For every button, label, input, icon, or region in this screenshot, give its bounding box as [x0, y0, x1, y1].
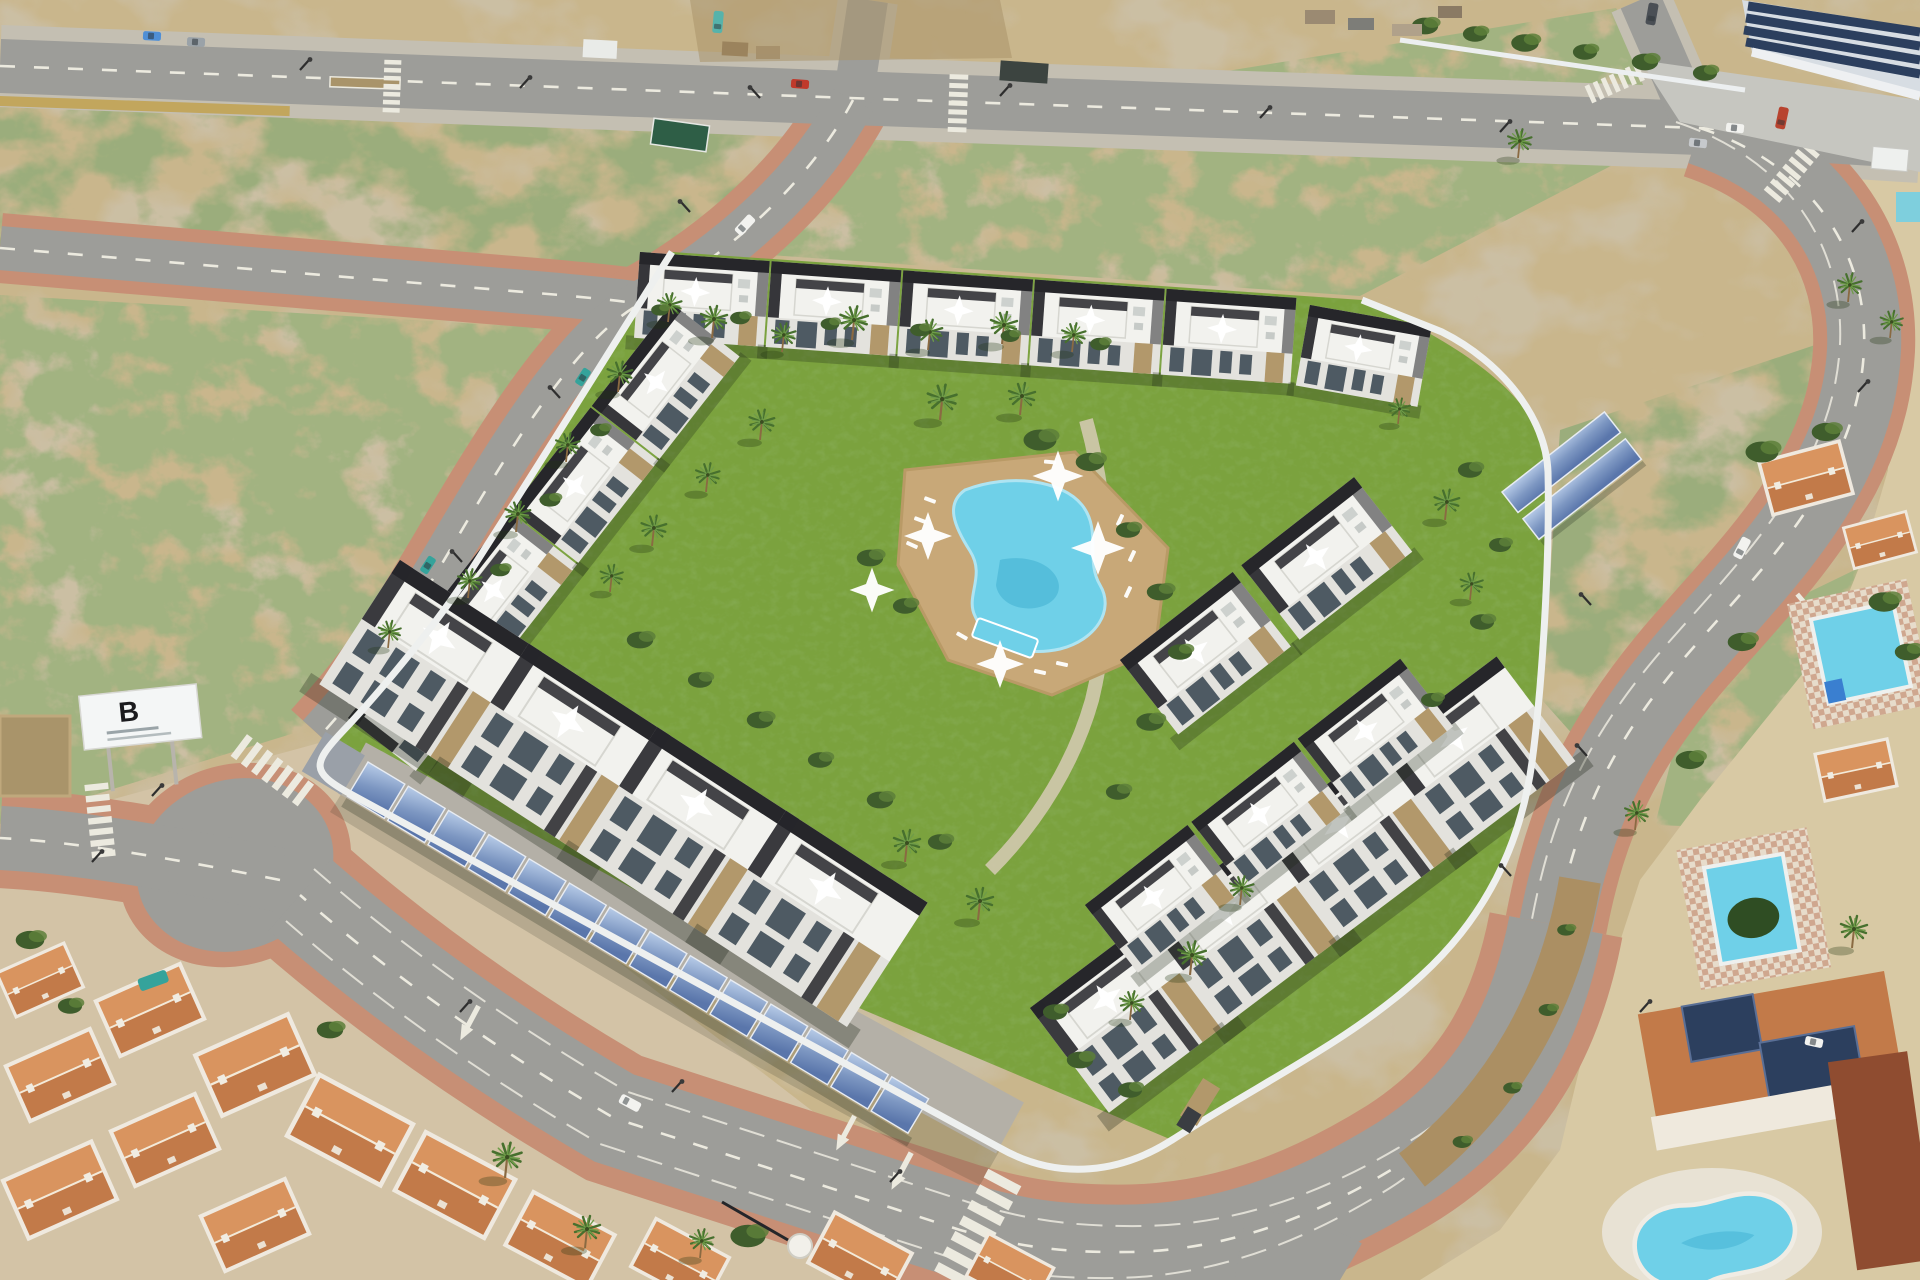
billboard-panel — [79, 684, 202, 750]
construction-plot — [690, 0, 1012, 62]
red-car — [791, 79, 810, 89]
roof-solar-array-1 — [1682, 994, 1763, 1062]
aerial-render: B — [0, 0, 1920, 1280]
aerial-scene: B — [0, 0, 1920, 1280]
walled-yard — [0, 716, 70, 796]
white-shed — [583, 39, 618, 59]
billboard-logo: B — [117, 695, 140, 728]
white-turret — [788, 1234, 812, 1258]
white-sign — [1871, 146, 1909, 171]
grey-car — [187, 37, 205, 47]
silver-car-top — [1689, 138, 1708, 149]
villa-mid — [1676, 827, 1831, 990]
bus-shelter — [999, 60, 1048, 83]
teal-bus-top — [712, 11, 724, 34]
white-car-top — [1726, 123, 1745, 134]
blue-car — [143, 31, 161, 41]
pool-sliver-topright — [1896, 192, 1920, 222]
